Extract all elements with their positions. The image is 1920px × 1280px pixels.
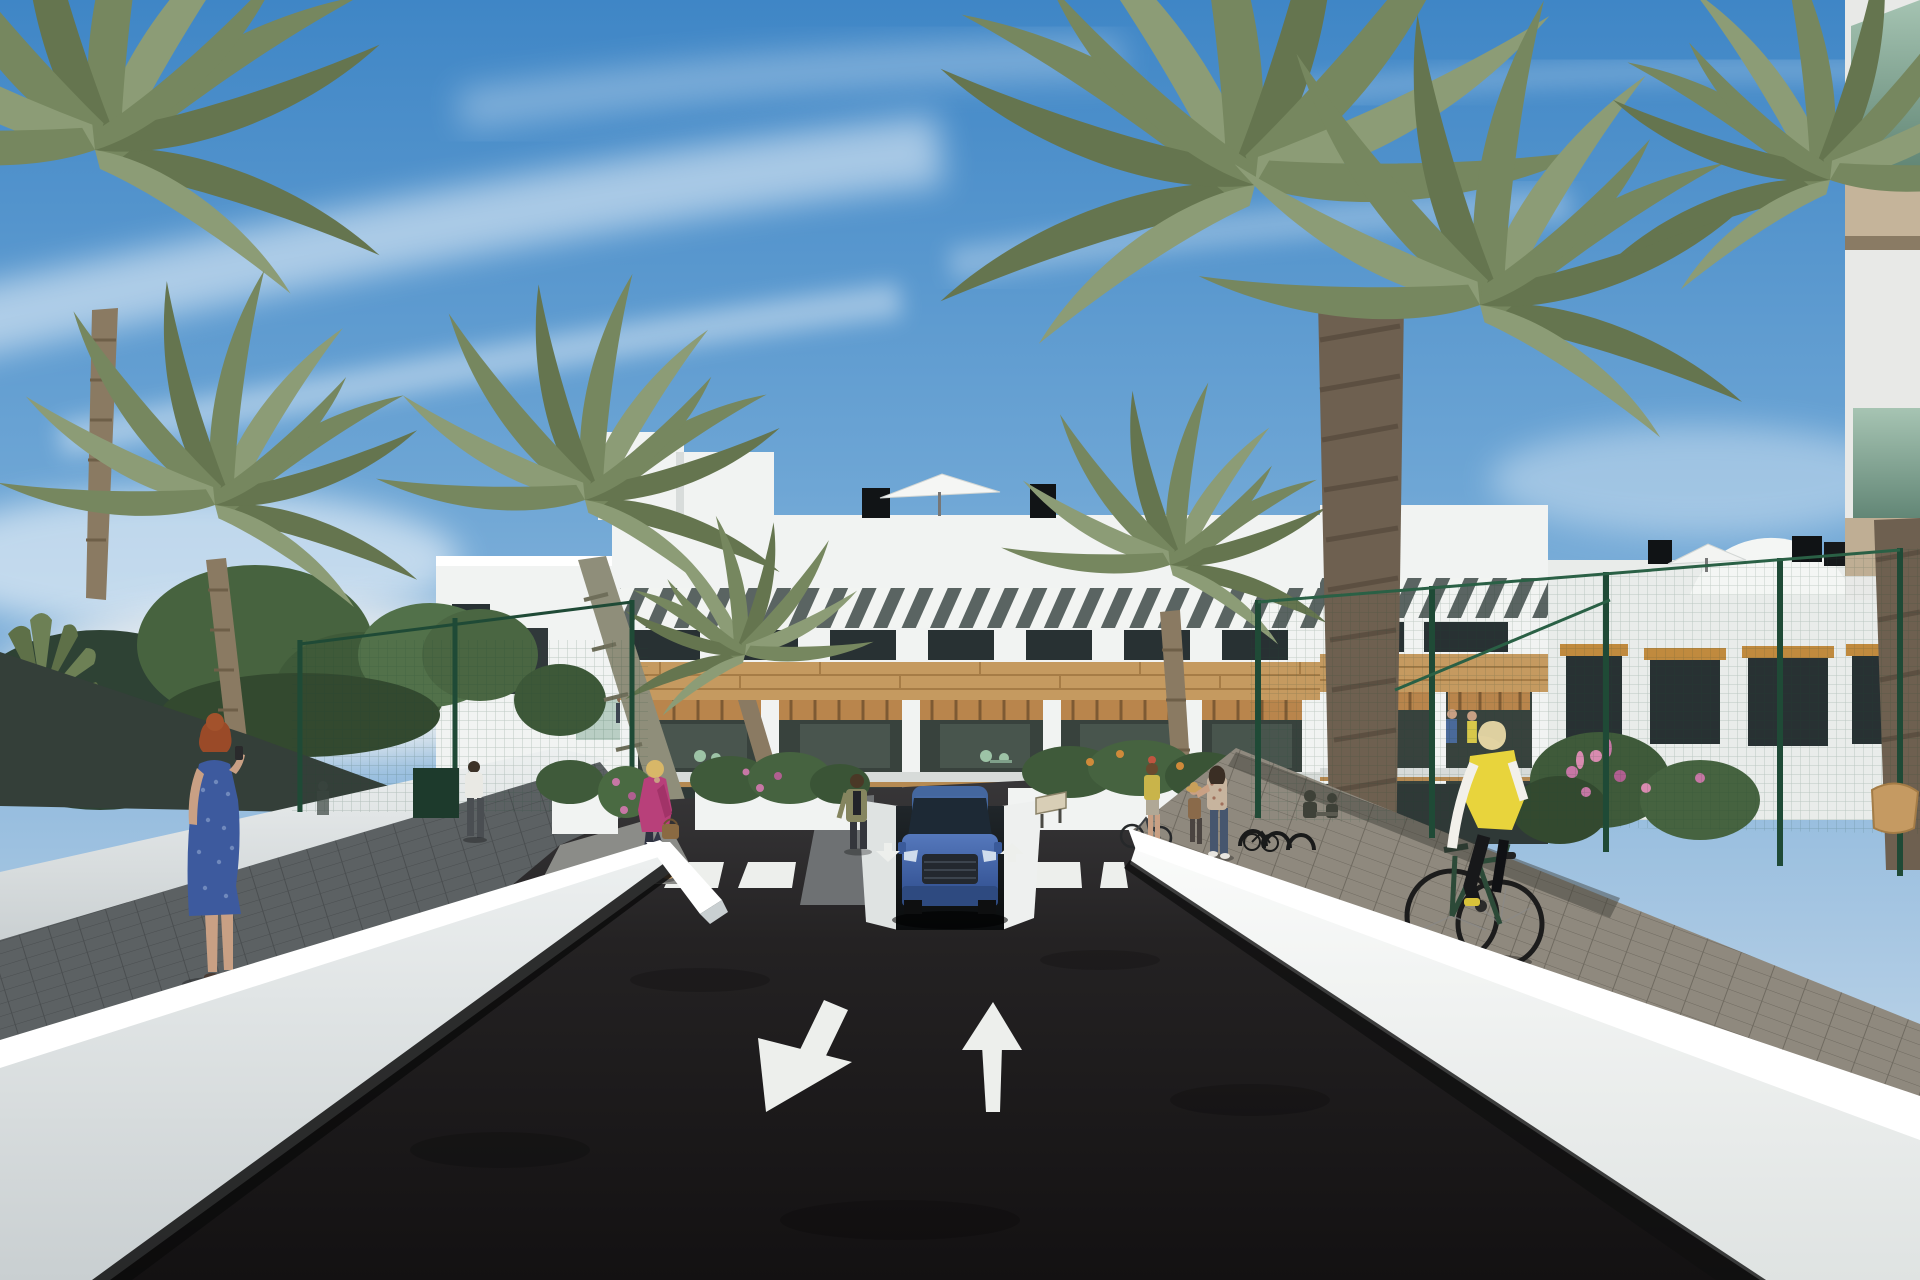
chimney <box>862 488 890 518</box>
windshield <box>908 798 992 836</box>
wicker-chair <box>1872 783 1918 833</box>
handbag <box>662 824 679 839</box>
architectural-render-scene <box>0 0 1920 1280</box>
person-behind-fence <box>317 781 329 815</box>
phone <box>235 746 243 760</box>
render-canvas <box>0 0 1920 1280</box>
blonde-hair <box>646 760 664 778</box>
fence-gate <box>413 768 459 818</box>
chimney <box>1648 540 1672 564</box>
headlight <box>904 850 918 862</box>
yellow-shoe <box>1464 898 1480 906</box>
yellow-top <box>1144 775 1160 800</box>
pergola-soffits <box>638 700 1302 720</box>
headlight <box>982 850 996 862</box>
glass-balcony-lower <box>1853 408 1920 520</box>
